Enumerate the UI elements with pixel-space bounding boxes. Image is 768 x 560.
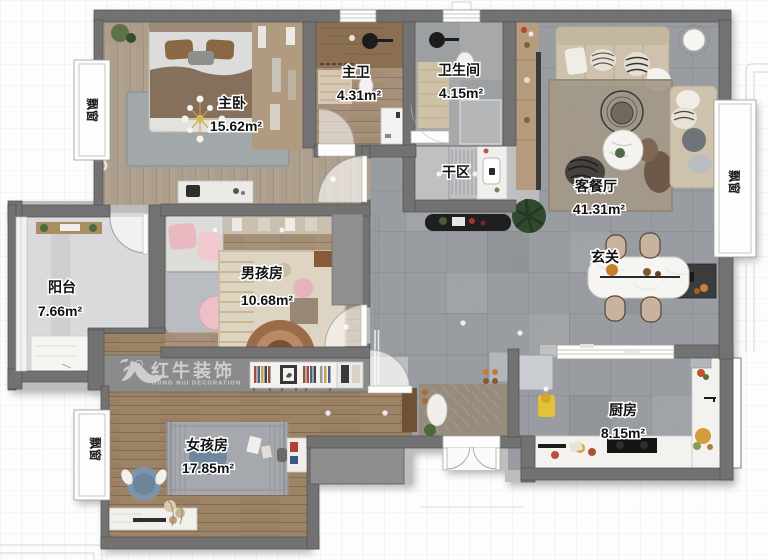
- svg-text:41.31m²: 41.31m²: [573, 201, 625, 217]
- svg-text:飘窗: 飘窗: [727, 170, 742, 194]
- svg-text:主卫: 主卫: [342, 64, 370, 80]
- svg-text:阳台: 阳台: [48, 279, 76, 295]
- svg-text:15.62m²: 15.62m²: [210, 118, 262, 134]
- svg-text:HONG NIU DECORATION: HONG NIU DECORATION: [152, 381, 241, 387]
- svg-text:4.31m²: 4.31m²: [337, 87, 382, 103]
- svg-text:女孩房: 女孩房: [186, 437, 228, 453]
- svg-text:主卧: 主卧: [218, 95, 246, 111]
- svg-text:17.85m²: 17.85m²: [182, 460, 234, 476]
- svg-text:男孩房: 男孩房: [241, 265, 283, 281]
- svg-text:卫生间: 卫生间: [438, 62, 480, 78]
- svg-text:7.66m²: 7.66m²: [38, 303, 83, 319]
- svg-text:10.68m²: 10.68m²: [241, 292, 293, 308]
- svg-text:干区: 干区: [442, 164, 470, 180]
- svg-text:厨房: 厨房: [609, 402, 637, 418]
- svg-text:飘窗: 飘窗: [85, 98, 100, 122]
- svg-text:飘窗: 飘窗: [88, 437, 103, 461]
- svg-text:玄关: 玄关: [591, 249, 619, 265]
- svg-text:红牛装饰: 红牛装饰: [151, 360, 235, 381]
- svg-text:8.15m²: 8.15m²: [601, 425, 646, 441]
- svg-text:客餐厅: 客餐厅: [574, 178, 617, 194]
- svg-text:4.15m²: 4.15m²: [439, 85, 484, 101]
